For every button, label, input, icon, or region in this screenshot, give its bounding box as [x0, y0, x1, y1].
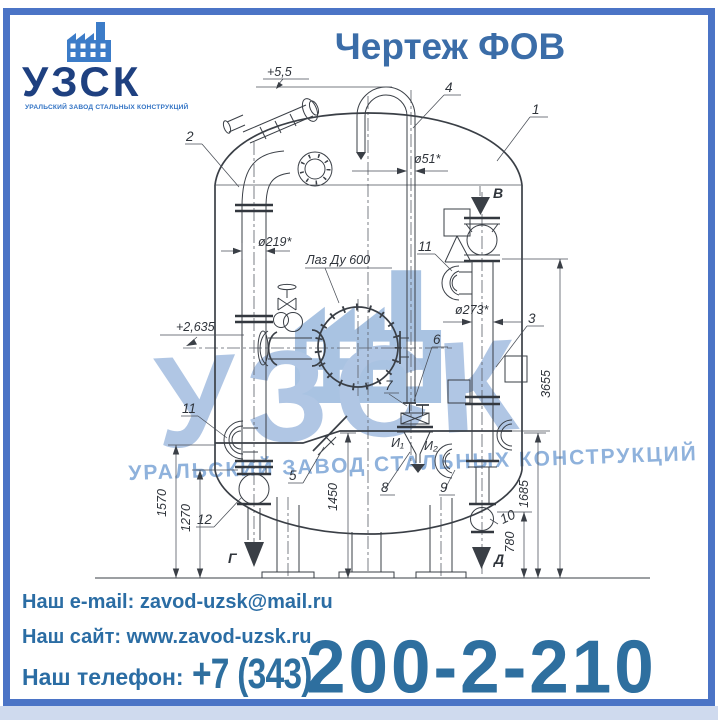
callout-12: 12	[197, 512, 213, 527]
elevation-mid-label: +2,635	[176, 320, 215, 334]
dim-1270-label: 1270	[179, 504, 193, 532]
dim-1685-label: 1685	[517, 480, 531, 508]
dim-d273-label: ø273*	[455, 303, 489, 317]
site-value: www.zavod-uzsk.ru	[127, 626, 312, 648]
site-label: Наш сайт:	[22, 626, 121, 648]
factory-icon	[64, 16, 114, 64]
bottom-left-nozzle	[224, 421, 258, 459]
left-mid-nozzle	[258, 330, 325, 366]
dim-3655-label: 3655	[539, 370, 553, 398]
dim-d219-label: ø219*	[258, 235, 292, 249]
callout-2: 2	[185, 129, 194, 144]
dim-d51	[352, 168, 448, 174]
flow-label-g: Г	[228, 550, 238, 566]
dim-d273	[443, 319, 522, 325]
shell-gate-valve	[274, 284, 303, 331]
email-label: Наш e-mail:	[22, 591, 134, 613]
dim-d51-label: ø51*	[414, 152, 442, 166]
callout-8: 8	[381, 480, 389, 495]
logo-tagline: УРАЛЬСКИЙ ЗАВОД СТАЛЬНЫХ КОНСТРУКЦИЙ	[25, 104, 188, 111]
callout-6: 6	[433, 332, 441, 347]
callout-7: 7	[385, 378, 393, 393]
flow-label-i1: И₁	[391, 436, 404, 450]
infographic-page: УЗСК УРАЛЬСКИЙ ЗАВОД СТАЛЬНЫХ КОНСТРУКЦИ…	[0, 0, 718, 720]
page-title: Чертеж ФОВ	[270, 26, 630, 68]
site-line: Наш сайт: www.zavod-uzsk.ru	[22, 626, 311, 649]
callout-5: 5	[289, 468, 297, 483]
dim-780-label: 780	[503, 532, 517, 553]
dim-1450-label: 1450	[326, 483, 340, 511]
dome-nozzles	[222, 96, 321, 143]
callout-1: 1	[532, 102, 540, 117]
logo-name: УЗСК	[22, 58, 141, 106]
email-line: Наш e-mail: zavod-uzsk@mail.ru	[22, 591, 333, 614]
phone-area-code: +7 (343)	[192, 650, 312, 699]
email-value: zavod-uzsk@mail.ru	[140, 591, 333, 613]
callout-4: 4	[445, 80, 453, 95]
manhole	[305, 268, 409, 387]
distributor	[313, 416, 347, 455]
manhole-label: Лаз Ду 600	[305, 253, 370, 267]
callout-11-top: 11	[418, 239, 432, 254]
right-nozzles	[435, 420, 512, 478]
callout-11-bottom: 11	[182, 401, 196, 416]
callout-3: 3	[528, 311, 536, 326]
support-legs	[262, 497, 466, 578]
phone-label: Наш телефон:	[22, 664, 184, 691]
phone-number: 200-2-210	[306, 630, 657, 705]
callout-10: 10	[498, 507, 518, 527]
inlet-valve-pipe3	[442, 186, 527, 461]
flow-label-i2: И₂	[424, 439, 438, 453]
callout-9: 9	[440, 480, 448, 495]
flow-label-v: В	[493, 185, 503, 201]
dim-1570-label: 1570	[155, 489, 169, 517]
